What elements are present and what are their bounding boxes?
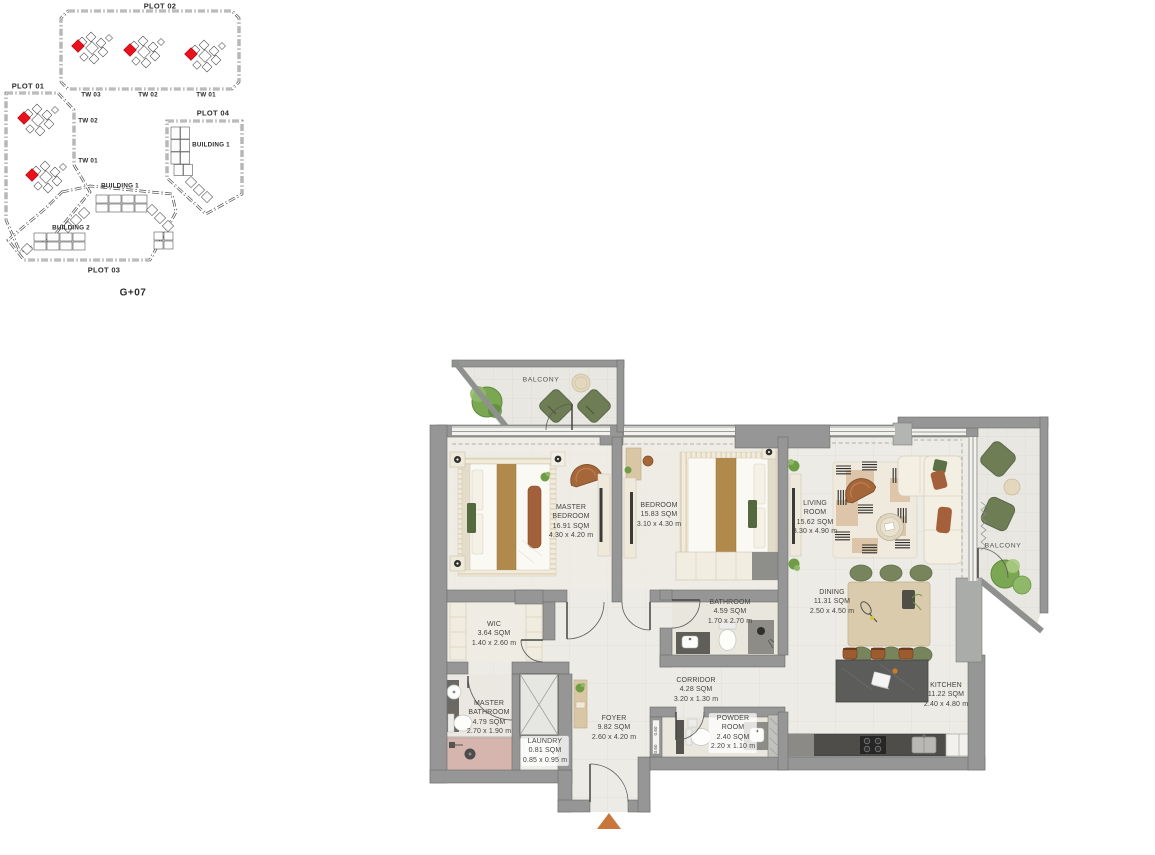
plot-04-label: PLOT 04 — [197, 109, 230, 118]
room-label-kitchen: KITCHEN 11.22 SQM 2.40 x 4.80 m — [924, 681, 968, 709]
building-label-p4-b1: BUILDING 1 — [192, 142, 230, 149]
building-label-p3-b2: BUILDING 2 — [52, 225, 90, 232]
floor-plan-page: 0.60 0.60 — [0, 0, 1155, 855]
room-label-laundry: LAUNDRY 0.81 SQM 0.85 x 0.95 m — [521, 736, 569, 766]
plot-01-label: PLOT 01 — [12, 82, 45, 91]
tower-label-tw02: TW 02 — [138, 92, 158, 99]
plot-03-boundary — [8, 186, 176, 260]
duct-niche: 0.60 0.60 — [653, 720, 660, 754]
room-label-master-bathroom: MASTER BATHROOM 4.79 SQM 2.70 x 1.90 m — [467, 699, 511, 737]
tower-label-tw01: TW 01 — [196, 92, 216, 99]
room-label-living-room: LIVING ROOM 15.62 SQM 3.30 x 4.90 m — [793, 499, 837, 537]
room-label-balcony-top: BALCONY — [523, 375, 560, 384]
room-label-bedroom: BEDROOM 15.83 SQM 3.10 x 4.30 m — [637, 501, 681, 529]
duct-dimension-label: 0.60 — [653, 726, 658, 735]
room-label-dining: DINING 11.31 SQM 2.50 x 4.50 m — [810, 588, 854, 616]
dining-furniture — [848, 565, 932, 663]
level-label: G+07 — [120, 288, 147, 299]
room-label-corridor: CORRIDOR 4.28 SQM 3.20 x 1.30 m — [674, 676, 718, 704]
site-plan — [6, 11, 242, 260]
building-label-p3-b1: BUILDING 1 — [101, 183, 139, 190]
plan-drawing: 0.60 0.60 — [0, 0, 1155, 855]
room-label-powder-room: POWDER ROOM 2.40 SQM 2.20 x 1.10 m — [709, 713, 757, 753]
room-label-balcony-right: BALCONY — [985, 541, 1022, 550]
room-label-master-bedroom: MASTER BEDROOM 16.91 SQM 4.30 x 4.20 m — [549, 503, 593, 541]
room-label-bathroom: BATHROOM 4.59 SQM 1.70 x 2.70 m — [708, 598, 752, 626]
tower-clusters — [18, 32, 226, 193]
plot-02-label: PLOT 02 — [144, 2, 177, 11]
foyer-console — [574, 680, 587, 728]
tower-label-tw03: TW 03 — [81, 92, 101, 99]
room-label-wic: WIC 3.64 SQM 1.40 x 2.60 m — [472, 620, 516, 648]
tower-label-p1-tw02: TW 02 — [78, 118, 98, 125]
duct-dimension-label: 0.60 — [653, 744, 658, 753]
entry-marker-icon — [597, 813, 621, 829]
plot-03-label: PLOT 03 — [88, 266, 121, 275]
room-label-foyer: FOYER 9.82 SQM 2.60 x 4.20 m — [592, 714, 636, 742]
tower-label-p1-tw01: TW 01 — [78, 158, 98, 165]
